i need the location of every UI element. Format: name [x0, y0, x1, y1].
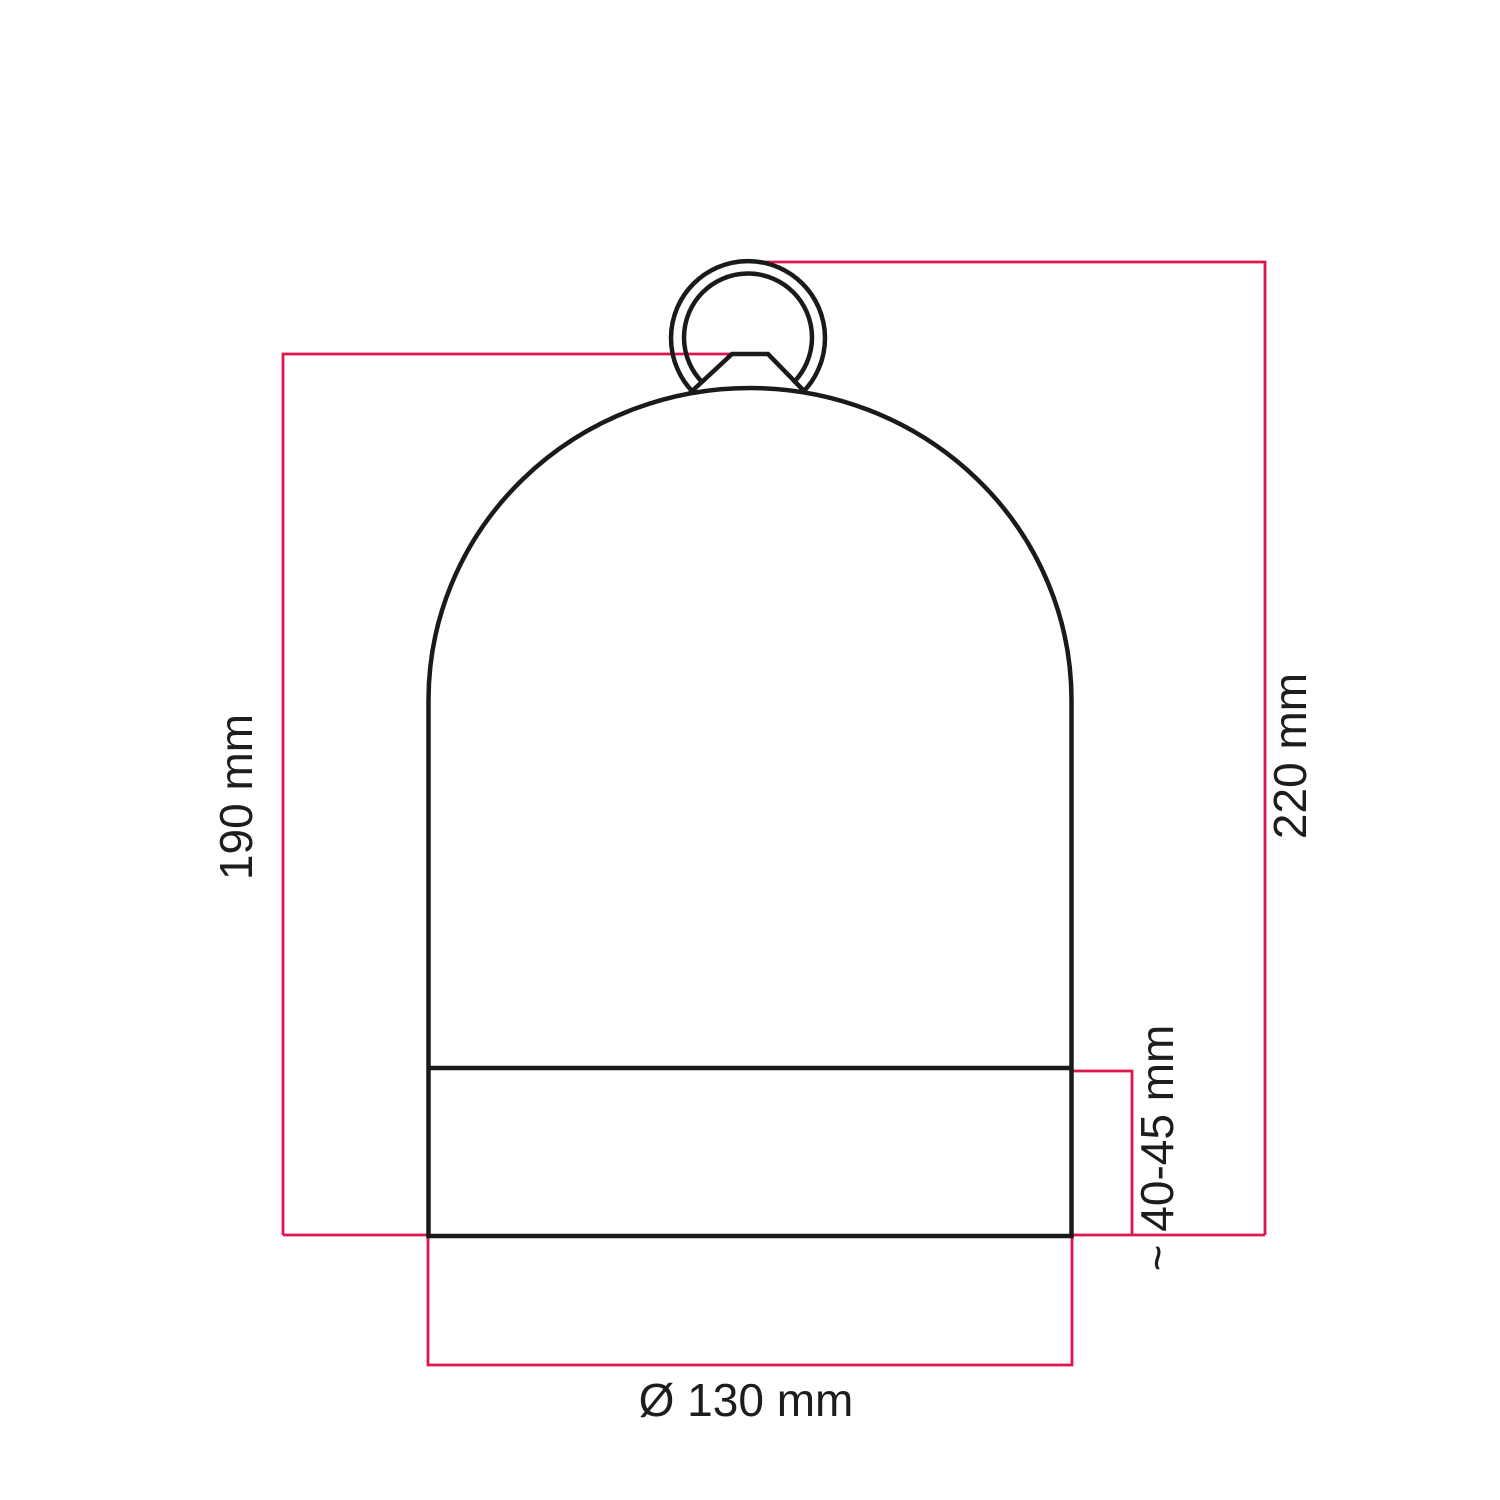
product-outline [429, 261, 1072, 1236]
bell-lampshade-dimension-drawing: 190 mm 220 mm ~ 40-45 mm Ø 130 mm [0, 0, 1500, 1500]
label-shade-height: 190 mm [210, 714, 262, 880]
ring-handle-inner-circle [684, 273, 812, 383]
bell-shade-body [429, 388, 1072, 1236]
label-diameter: Ø 130 mm [639, 1374, 854, 1426]
dimension-box-base-height [1072, 1071, 1132, 1235]
dimension-diagram-page: 190 mm 220 mm ~ 40-45 mm Ø 130 mm [0, 0, 1500, 1500]
label-total-height: 220 mm [1264, 673, 1316, 839]
label-base-height: ~ 40-45 mm [1131, 1025, 1183, 1272]
dimension-box-diameter [428, 1237, 1072, 1365]
